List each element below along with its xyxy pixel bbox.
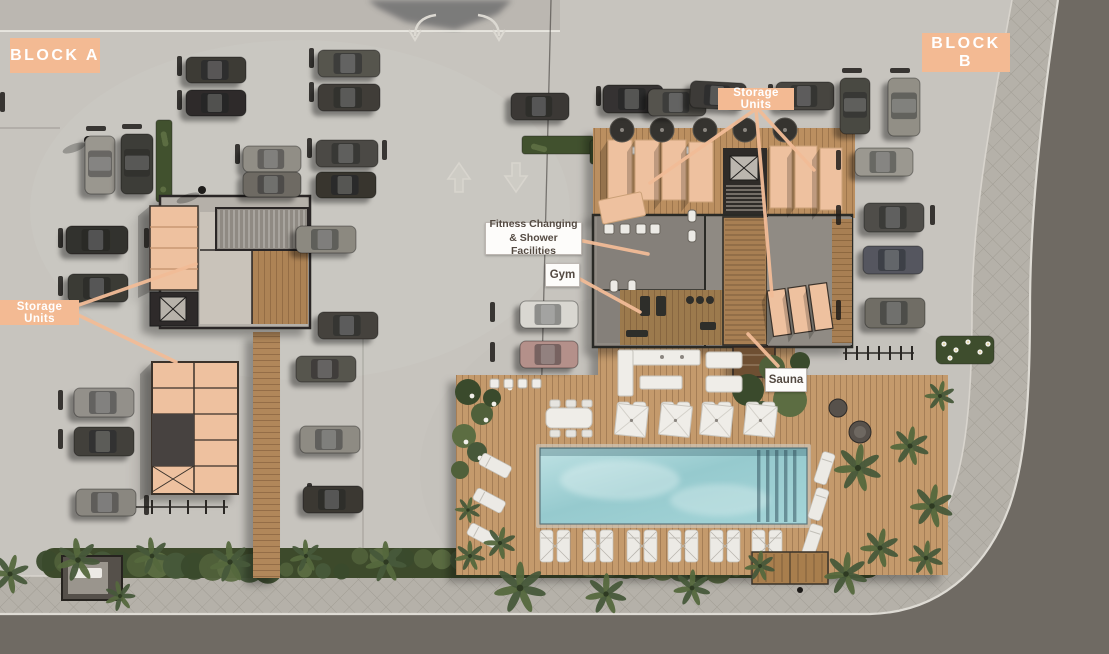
car	[296, 356, 356, 382]
gym-equipment	[640, 296, 650, 316]
wheel-stop	[842, 68, 862, 73]
label-block-a: BLOCK A	[10, 38, 100, 73]
wheel-stop	[596, 86, 601, 106]
car	[74, 427, 134, 456]
label-storage-units-top: Storage Units	[718, 88, 794, 110]
car	[520, 301, 578, 328]
car	[74, 388, 134, 417]
site-plan-graphic	[0, 0, 1109, 654]
umbrella	[614, 403, 648, 437]
car	[863, 246, 923, 274]
car	[318, 50, 380, 77]
umbrella	[699, 403, 733, 437]
wheel-stop	[490, 302, 495, 322]
block-a-storage-building	[140, 362, 238, 500]
wheel-stop	[382, 140, 387, 160]
sun-lounger	[627, 530, 640, 562]
sun-lounger	[710, 530, 723, 562]
pool-steps	[757, 450, 760, 522]
sun-lounger	[600, 530, 613, 562]
car	[840, 78, 870, 134]
gym-floor	[620, 290, 723, 345]
wheel-stop	[490, 342, 495, 362]
car	[865, 298, 925, 328]
car	[243, 146, 301, 172]
wheel-stop	[309, 82, 314, 102]
car	[888, 78, 920, 136]
wheel-stop	[836, 205, 841, 225]
sun-lounger	[540, 530, 553, 562]
label-sauna-text: Sauna	[769, 374, 804, 386]
site-plan: BLOCK A BLOCK B Storage Units Storage Un…	[0, 0, 1109, 654]
pool-steps	[766, 450, 769, 522]
wheel-stop	[177, 56, 182, 76]
car	[316, 140, 378, 167]
wheel-stop	[58, 228, 63, 248]
wheel-stop	[86, 126, 106, 131]
label-storage-units-left: Storage Units	[0, 300, 79, 325]
label-block-b-text: BLOCK B	[922, 35, 1010, 71]
label-storage-units-top-text: Storage Units	[718, 87, 794, 111]
wheel-stop	[836, 300, 841, 320]
gym-equipment	[700, 322, 716, 330]
wheel-stop	[307, 138, 312, 158]
umbrella	[658, 403, 692, 437]
wheel-stop	[122, 124, 142, 129]
label-gym-text: Gym	[550, 269, 576, 281]
sun-lounger	[557, 530, 570, 562]
label-fitness-line2: & Shower Facilities	[486, 232, 581, 259]
label-fitness-line1: Fitness Changing	[489, 218, 577, 232]
stair-core	[723, 217, 767, 345]
car	[296, 226, 356, 253]
wheel-stop	[177, 90, 182, 110]
car	[316, 172, 376, 198]
car	[243, 172, 301, 197]
car	[121, 134, 153, 194]
umbrella	[743, 403, 777, 437]
pool-steps	[775, 450, 778, 522]
wheel-stop	[58, 390, 63, 410]
car	[864, 203, 924, 232]
label-storage-units-left-text: Storage Units	[0, 301, 79, 325]
wheel-stop	[309, 48, 314, 68]
label-block-b: BLOCK B	[922, 33, 1010, 72]
swimming-pool	[536, 444, 811, 528]
pool-steps	[784, 450, 787, 522]
wheel-stop	[144, 228, 149, 248]
car	[186, 90, 246, 116]
wheel-stop	[144, 495, 149, 515]
parasol-table	[610, 118, 634, 142]
label-sauna: Sauna	[765, 368, 807, 392]
car	[318, 84, 380, 111]
wheel-stop	[58, 429, 63, 449]
label-fitness-changing: Fitness Changing & Shower Facilities	[485, 222, 582, 255]
car	[511, 93, 569, 120]
car	[76, 489, 136, 516]
wheel-stop	[0, 92, 5, 112]
car	[318, 312, 378, 339]
label-gym: Gym	[545, 263, 580, 287]
label-block-a-text: BLOCK A	[10, 47, 100, 65]
car	[85, 136, 115, 194]
sun-lounger	[583, 530, 596, 562]
sun-lounger	[644, 530, 657, 562]
wheel-stop	[58, 276, 63, 296]
sun-lounger	[685, 530, 698, 562]
wheel-stop	[890, 68, 910, 73]
block-a-building	[138, 196, 310, 328]
wheel-stop	[235, 144, 240, 164]
car	[66, 226, 128, 254]
wheel-stop	[836, 150, 841, 170]
flower-bed	[936, 336, 994, 364]
car	[855, 148, 913, 176]
gym-equipment	[656, 296, 666, 316]
car	[520, 341, 578, 368]
sun-lounger	[668, 530, 681, 562]
car	[300, 426, 360, 453]
car	[303, 486, 363, 513]
dining-set	[546, 400, 592, 437]
pool-steps	[793, 450, 796, 522]
wheel-stop	[930, 205, 935, 225]
car	[186, 57, 246, 83]
sun-lounger	[727, 530, 740, 562]
parasol-table	[650, 118, 674, 142]
